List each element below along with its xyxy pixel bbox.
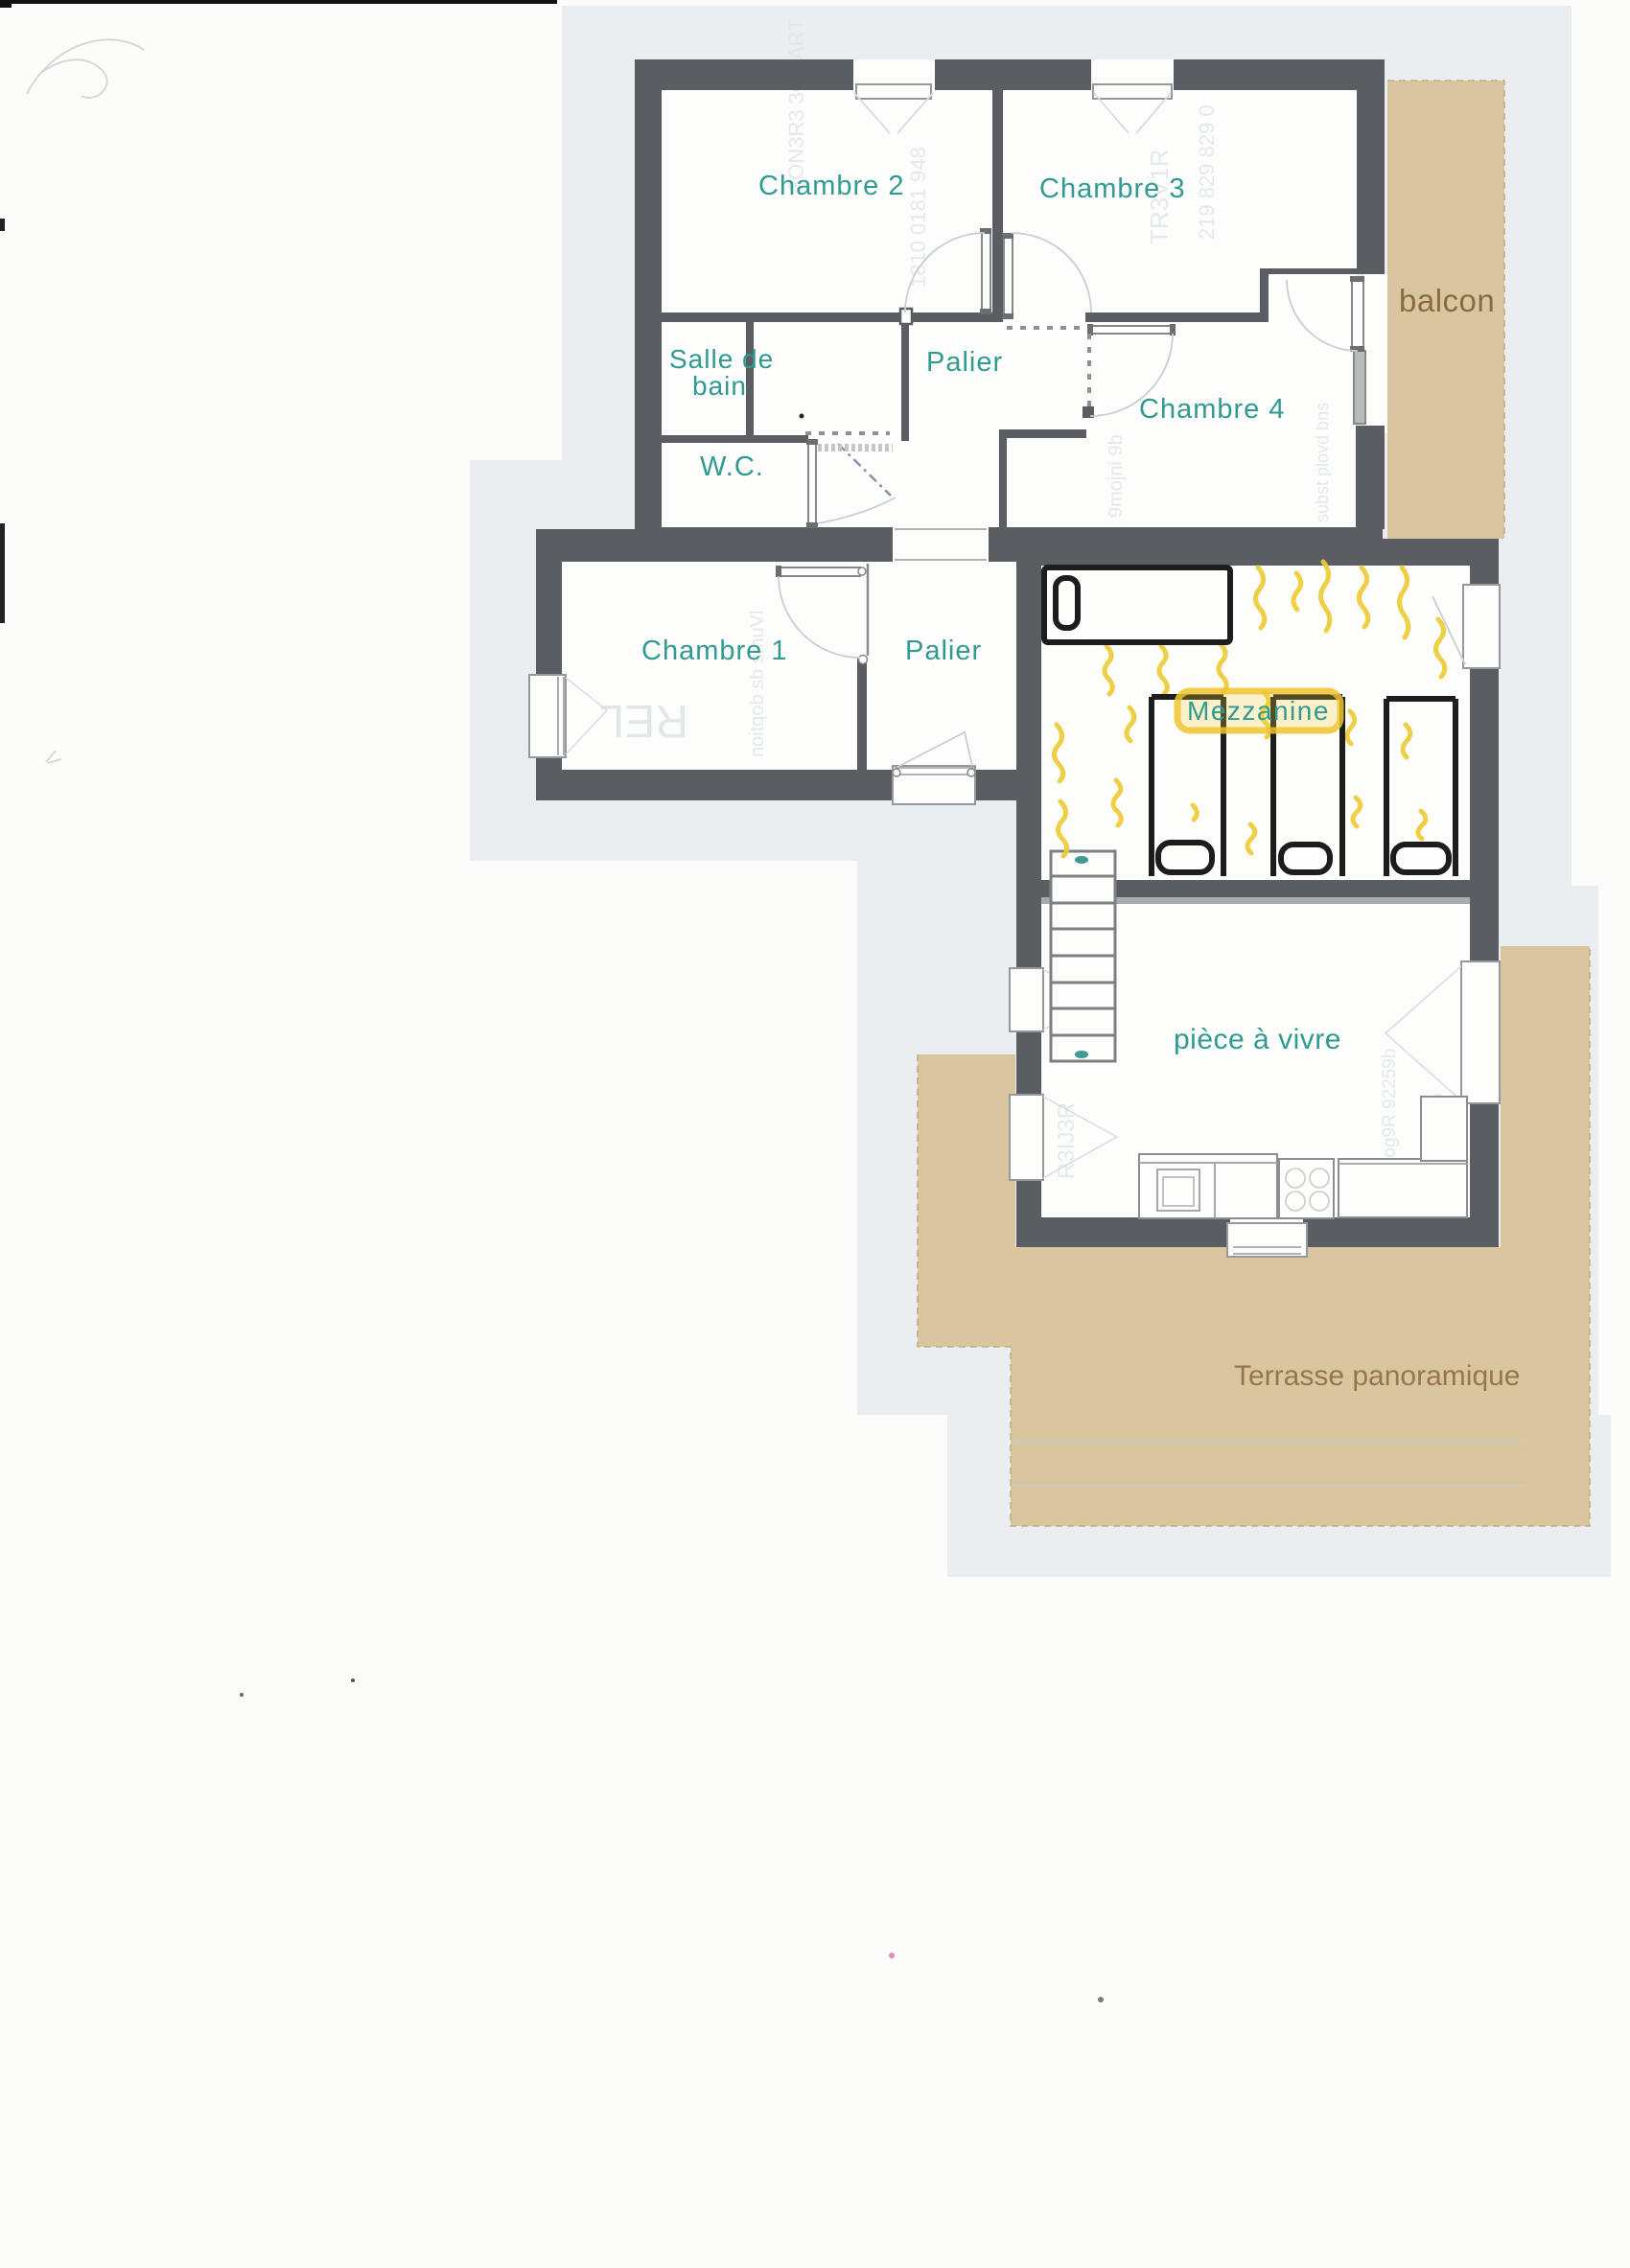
svg-text:bain: bain bbox=[692, 371, 747, 401]
svg-text:REL: REL bbox=[599, 695, 688, 746]
svg-text:W.C.: W.C. bbox=[700, 451, 764, 482]
svg-text:Mezzanine: Mezzanine bbox=[1187, 696, 1330, 726]
svg-text:Chambre 3: Chambre 3 bbox=[1039, 174, 1185, 204]
svg-text:Salle de: Salle de bbox=[669, 344, 774, 374]
svg-text:1810 0181 948: 1810 0181 948 bbox=[906, 147, 930, 288]
svg-text:balcon: balcon bbox=[1399, 283, 1495, 318]
svg-text:noitqob sb smuVl: noitqob sb smuVl bbox=[747, 611, 768, 757]
svg-text:Terrasse panoramique: Terrasse panoramique bbox=[1234, 1360, 1521, 1392]
svg-text:Palier: Palier bbox=[905, 636, 982, 666]
svg-text:9mojni 9b: 9mojni 9b bbox=[1106, 434, 1127, 518]
svg-text:3ON3R3 3ONART: 3ON3R3 3ONART bbox=[784, 18, 808, 192]
svg-text:219 829 829 0: 219 829 829 0 bbox=[1195, 104, 1219, 240]
svg-text:Chambre 1: Chambre 1 bbox=[641, 636, 787, 666]
svg-text:pièce à vivre: pièce à vivre bbox=[1174, 1024, 1341, 1055]
svg-text:Chambre 2: Chambre 2 bbox=[758, 171, 904, 201]
svg-text:subst plovd bns: subst plovd bns bbox=[1313, 403, 1332, 522]
svg-text:Palier: Palier bbox=[926, 347, 1003, 378]
svg-text:Chambre 4: Chambre 4 bbox=[1139, 394, 1285, 425]
